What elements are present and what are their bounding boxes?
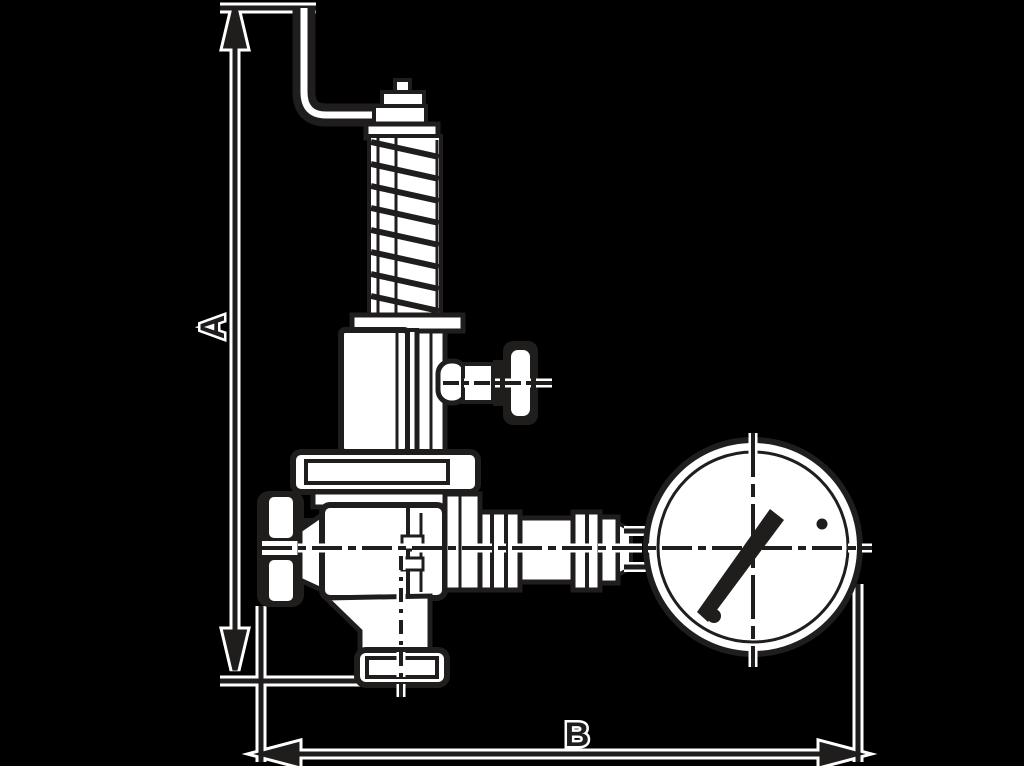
dimension-b-label: B [565, 716, 590, 754]
bonnet-flange [293, 452, 478, 492]
dimension-a-label: A [194, 315, 232, 340]
gauge-screw-left [707, 609, 721, 623]
gauge-screw-right [817, 519, 828, 530]
drawing-canvas: A B [0, 0, 1024, 766]
spring-bonnet [341, 330, 417, 452]
spring [369, 136, 441, 317]
valve-dimension-diagram: A B [0, 0, 1024, 766]
